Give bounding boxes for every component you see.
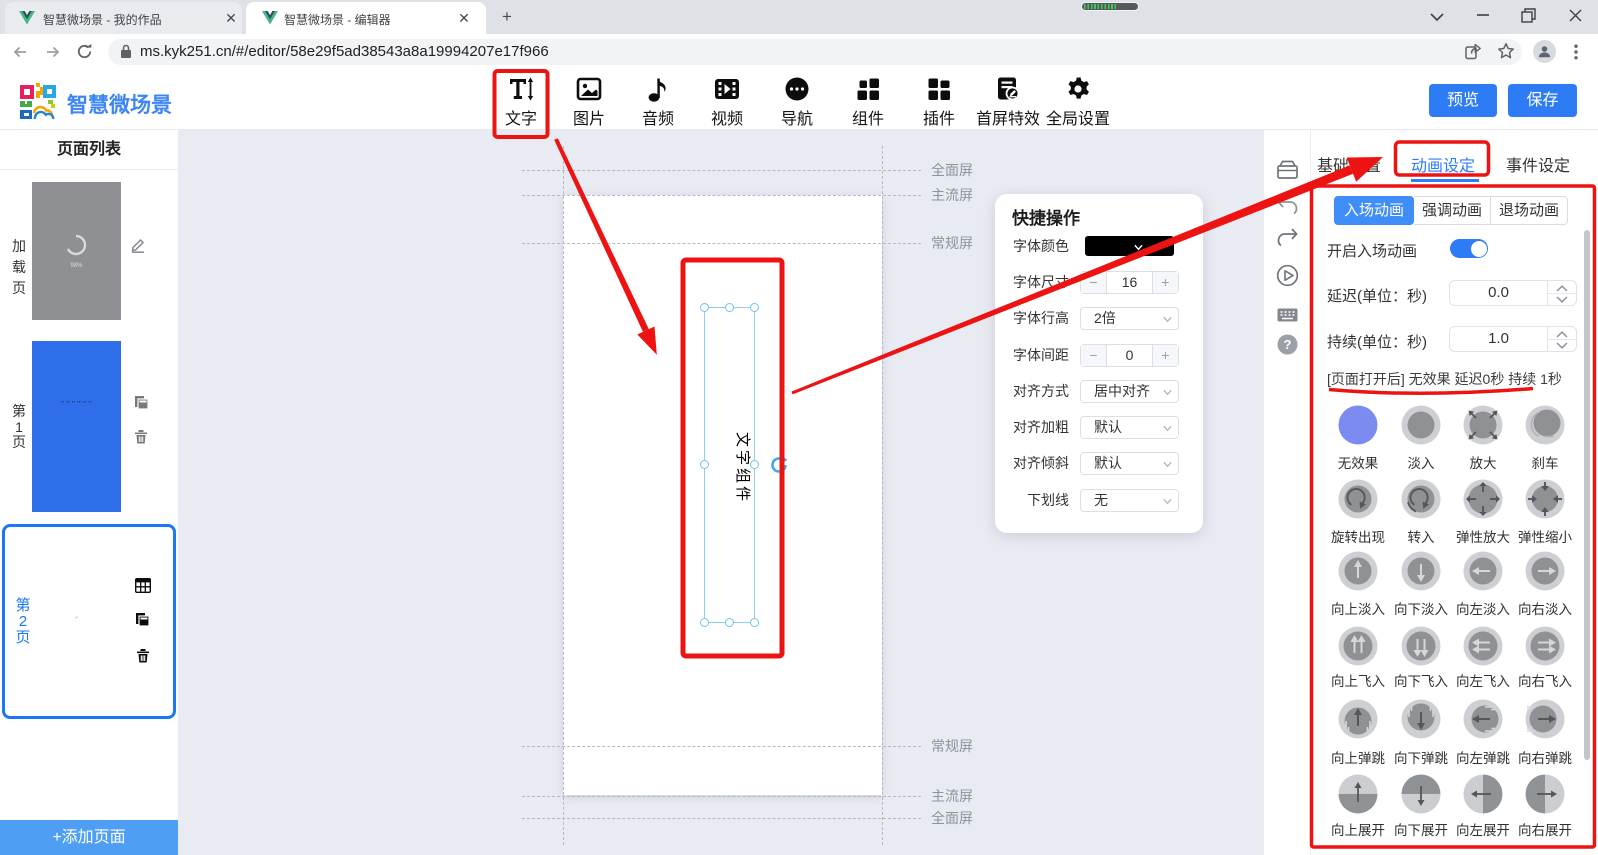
svg-text:?: ?: [1284, 337, 1292, 352]
